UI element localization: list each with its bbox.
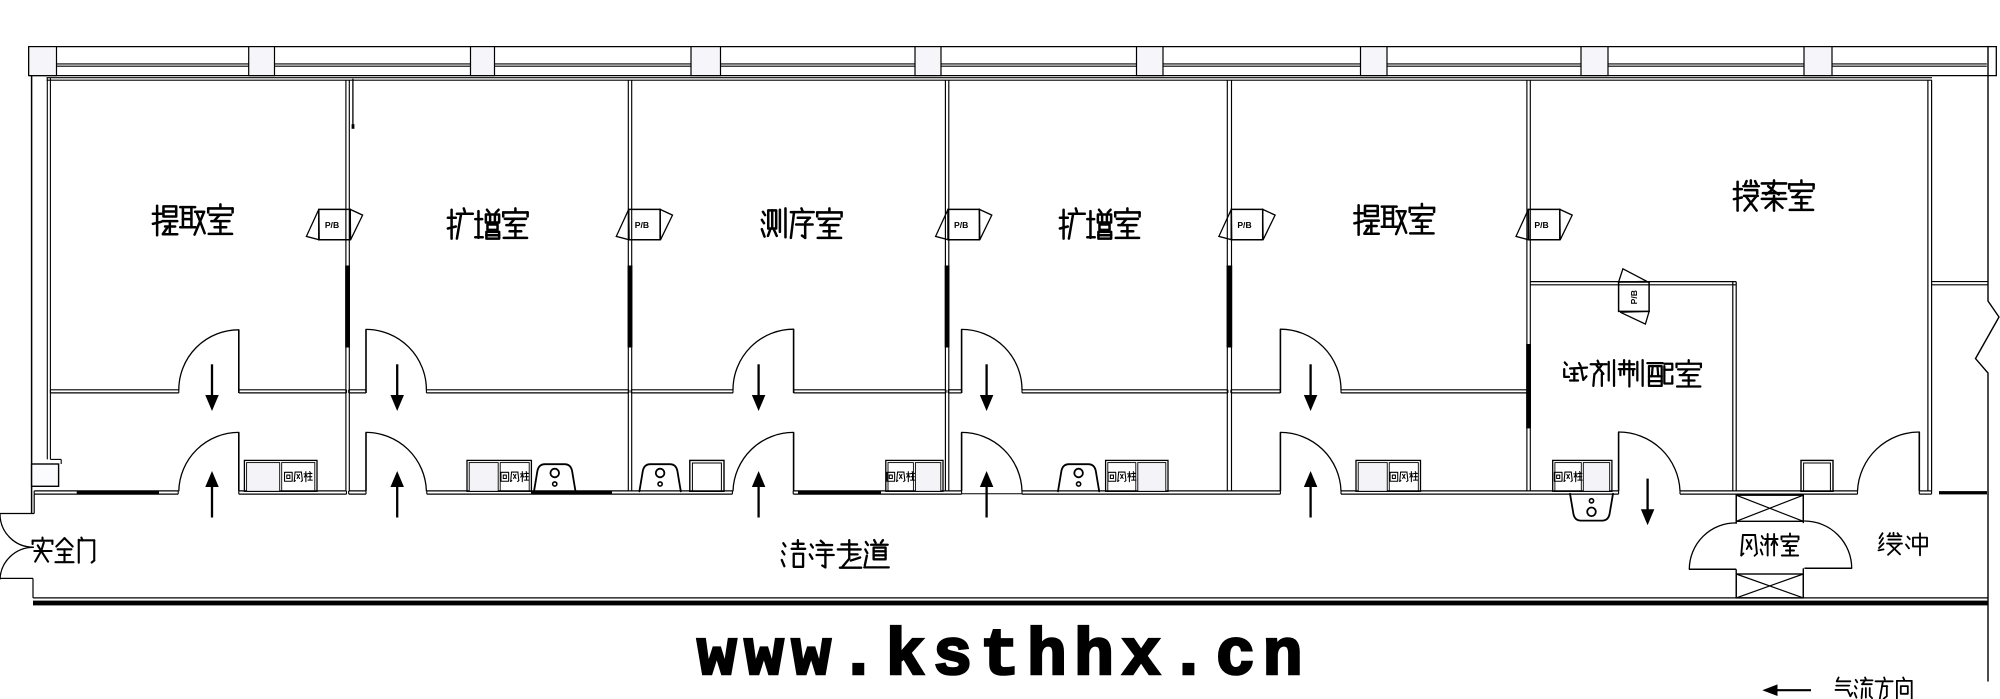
svg-text:P/B: P/B [635, 220, 649, 230]
svg-text:P/B: P/B [325, 220, 339, 230]
svg-text:www.ksthhx.cn: www.ksthhx.cn [697, 619, 1310, 694]
svg-text:P/B: P/B [1237, 220, 1251, 230]
svg-text:P/B: P/B [1629, 290, 1639, 304]
svg-text:P/B: P/B [1534, 220, 1548, 230]
svg-text:P/B: P/B [954, 220, 968, 230]
